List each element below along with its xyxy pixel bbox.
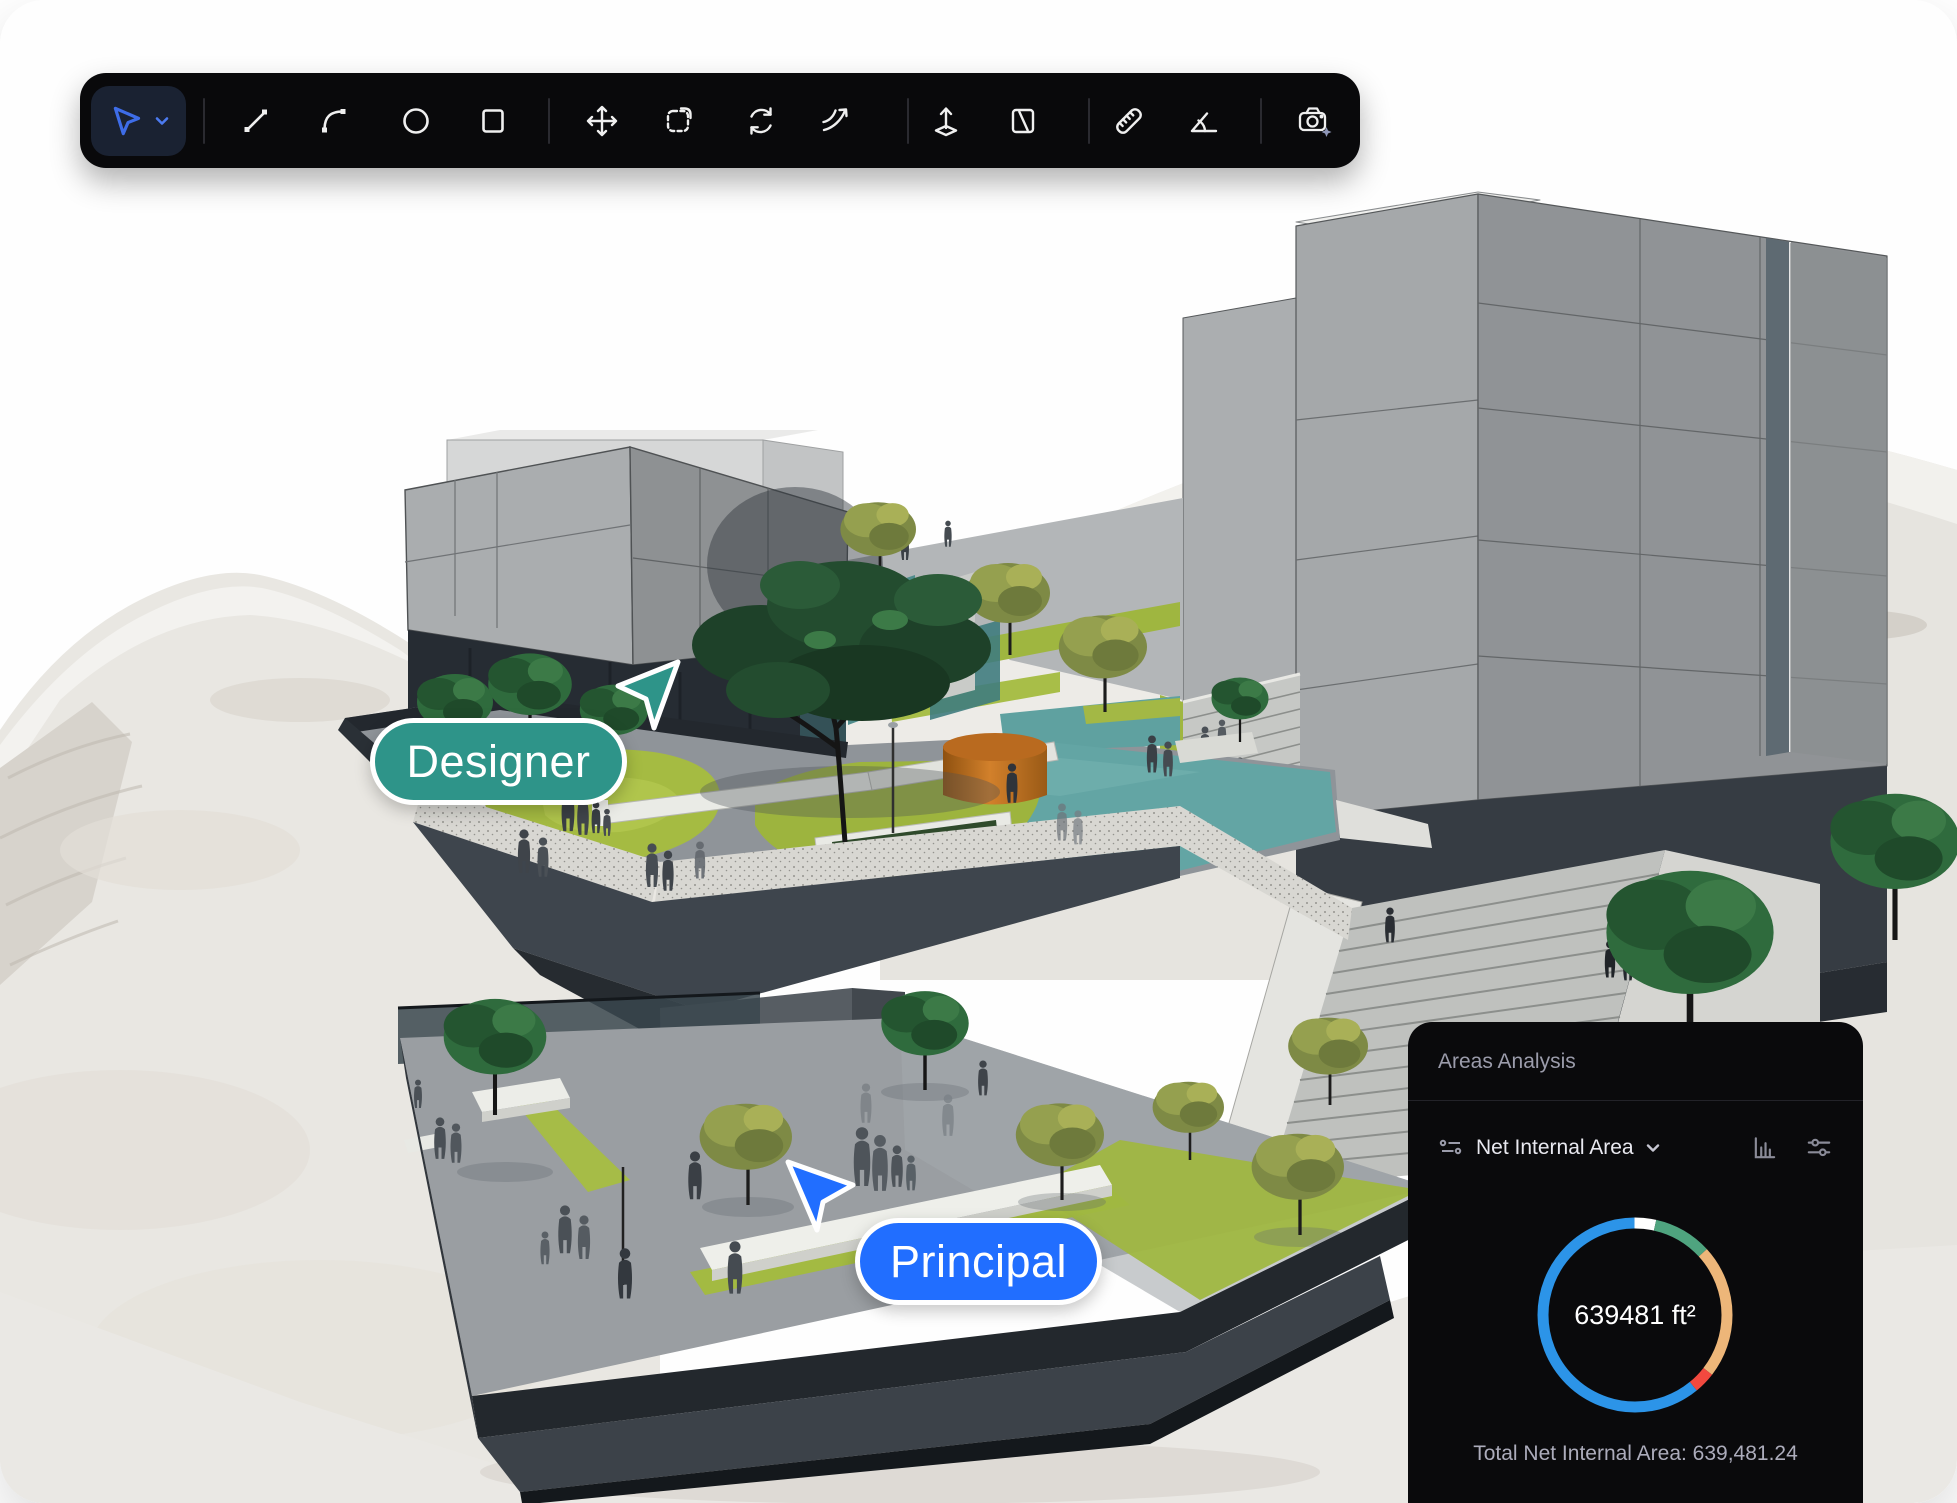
rotate-icon	[742, 102, 780, 140]
tool-rotate-button[interactable]	[733, 93, 789, 149]
designer-cursor-icon	[600, 645, 700, 745]
tool-render-button[interactable]	[1286, 93, 1342, 149]
tool-section-button[interactable]	[995, 93, 1051, 149]
chevron-down-icon[interactable]	[1644, 1139, 1662, 1157]
tool-rectangle-button[interactable]	[465, 93, 521, 149]
tool-line-button[interactable]	[228, 93, 284, 149]
bar-chart-view-button[interactable]	[1751, 1134, 1779, 1162]
camera-sparkle-icon	[1294, 101, 1334, 141]
tool-extrude-button[interactable]	[918, 93, 974, 149]
toolbar-divider	[907, 98, 909, 144]
arc-icon	[315, 102, 353, 140]
areas-analysis-panel: Areas Analysis Net Internal Area	[1408, 1022, 1863, 1503]
tool-duplicate-button[interactable]	[650, 93, 706, 149]
principal-label: Principal	[855, 1218, 1102, 1305]
filters-icon	[1805, 1134, 1833, 1162]
toolbar-divider	[1088, 98, 1090, 144]
metric-selector[interactable]: Net Internal Area	[1476, 1136, 1634, 1160]
copy-dashed-icon	[659, 102, 697, 140]
angle-icon	[1185, 102, 1223, 140]
list-settings-icon	[1438, 1135, 1464, 1161]
push-pull-icon	[927, 102, 965, 140]
toolbar-divider	[1260, 98, 1262, 144]
ruler-icon	[1110, 102, 1148, 140]
tool-circle-button[interactable]	[388, 93, 444, 149]
designer-label: Designer	[370, 718, 627, 805]
circle-icon	[397, 102, 435, 140]
line-icon	[237, 102, 275, 140]
toolbar	[80, 73, 1360, 168]
panel-title: Areas Analysis	[1438, 1050, 1576, 1074]
move-arrows-icon	[583, 102, 621, 140]
total-area-text: Total Net Internal Area: 639,481.24	[1408, 1442, 1863, 1466]
cursor-icon	[108, 101, 148, 141]
principal-label-text: Principal	[890, 1236, 1067, 1288]
toolbar-divider	[203, 98, 205, 144]
toolbar-divider	[548, 98, 550, 144]
tool-select-button[interactable]	[91, 86, 186, 156]
tool-move-button[interactable]	[574, 93, 630, 149]
principal-cursor-icon	[775, 1150, 875, 1250]
rectangle-icon	[474, 102, 512, 140]
tool-measure-button[interactable]	[1101, 93, 1157, 149]
bar-chart-icon	[1751, 1134, 1779, 1162]
filters-button[interactable]	[1805, 1134, 1833, 1162]
panel-divider	[1408, 1100, 1863, 1101]
donut-center-value: 639481 ft²	[1485, 1165, 1785, 1465]
app-window: Designer Principal Areas Analysis Net In…	[0, 0, 1957, 1503]
metric-row: Net Internal Area	[1438, 1126, 1833, 1170]
designer-label-text: Designer	[406, 736, 590, 788]
curve-arrow-icon	[817, 102, 855, 140]
tool-offset-button[interactable]	[808, 93, 864, 149]
section-plane-icon	[1004, 102, 1042, 140]
tool-arc-button[interactable]	[306, 93, 362, 149]
tool-protractor-button[interactable]	[1176, 93, 1232, 149]
chevron-down-icon	[154, 113, 170, 129]
